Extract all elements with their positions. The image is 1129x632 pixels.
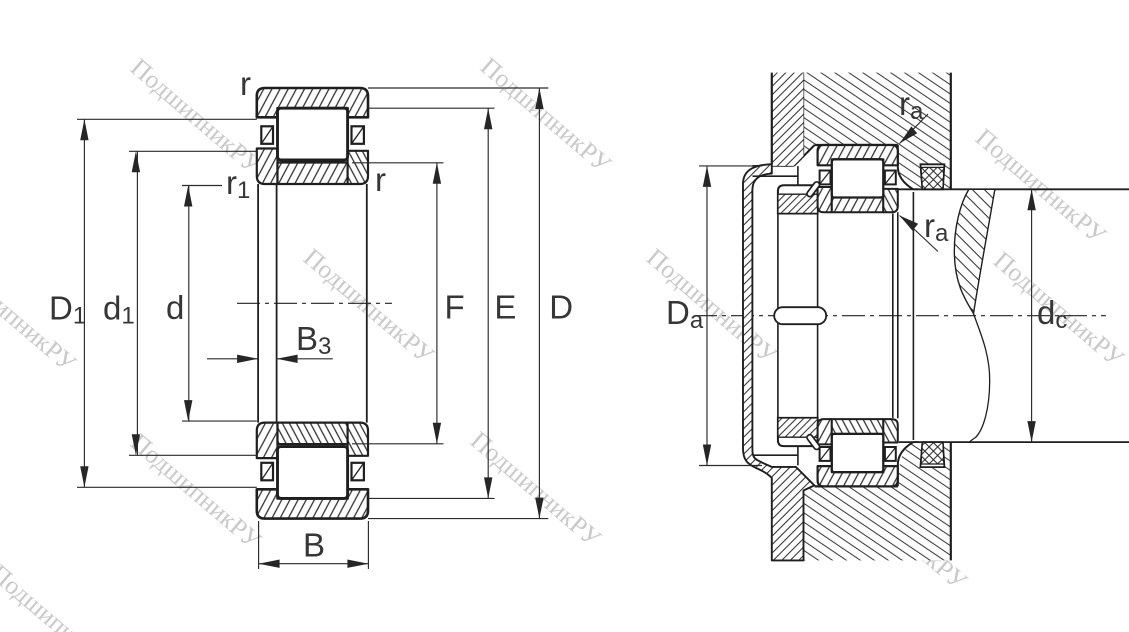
svg-text:E: E xyxy=(494,289,516,326)
svg-text:D: D xyxy=(549,289,573,326)
svg-text:r: r xyxy=(240,65,251,102)
svg-text:d: d xyxy=(166,289,184,326)
svg-text:F: F xyxy=(445,289,465,326)
svg-text:r: r xyxy=(375,161,386,198)
svg-text:B: B xyxy=(303,526,325,563)
